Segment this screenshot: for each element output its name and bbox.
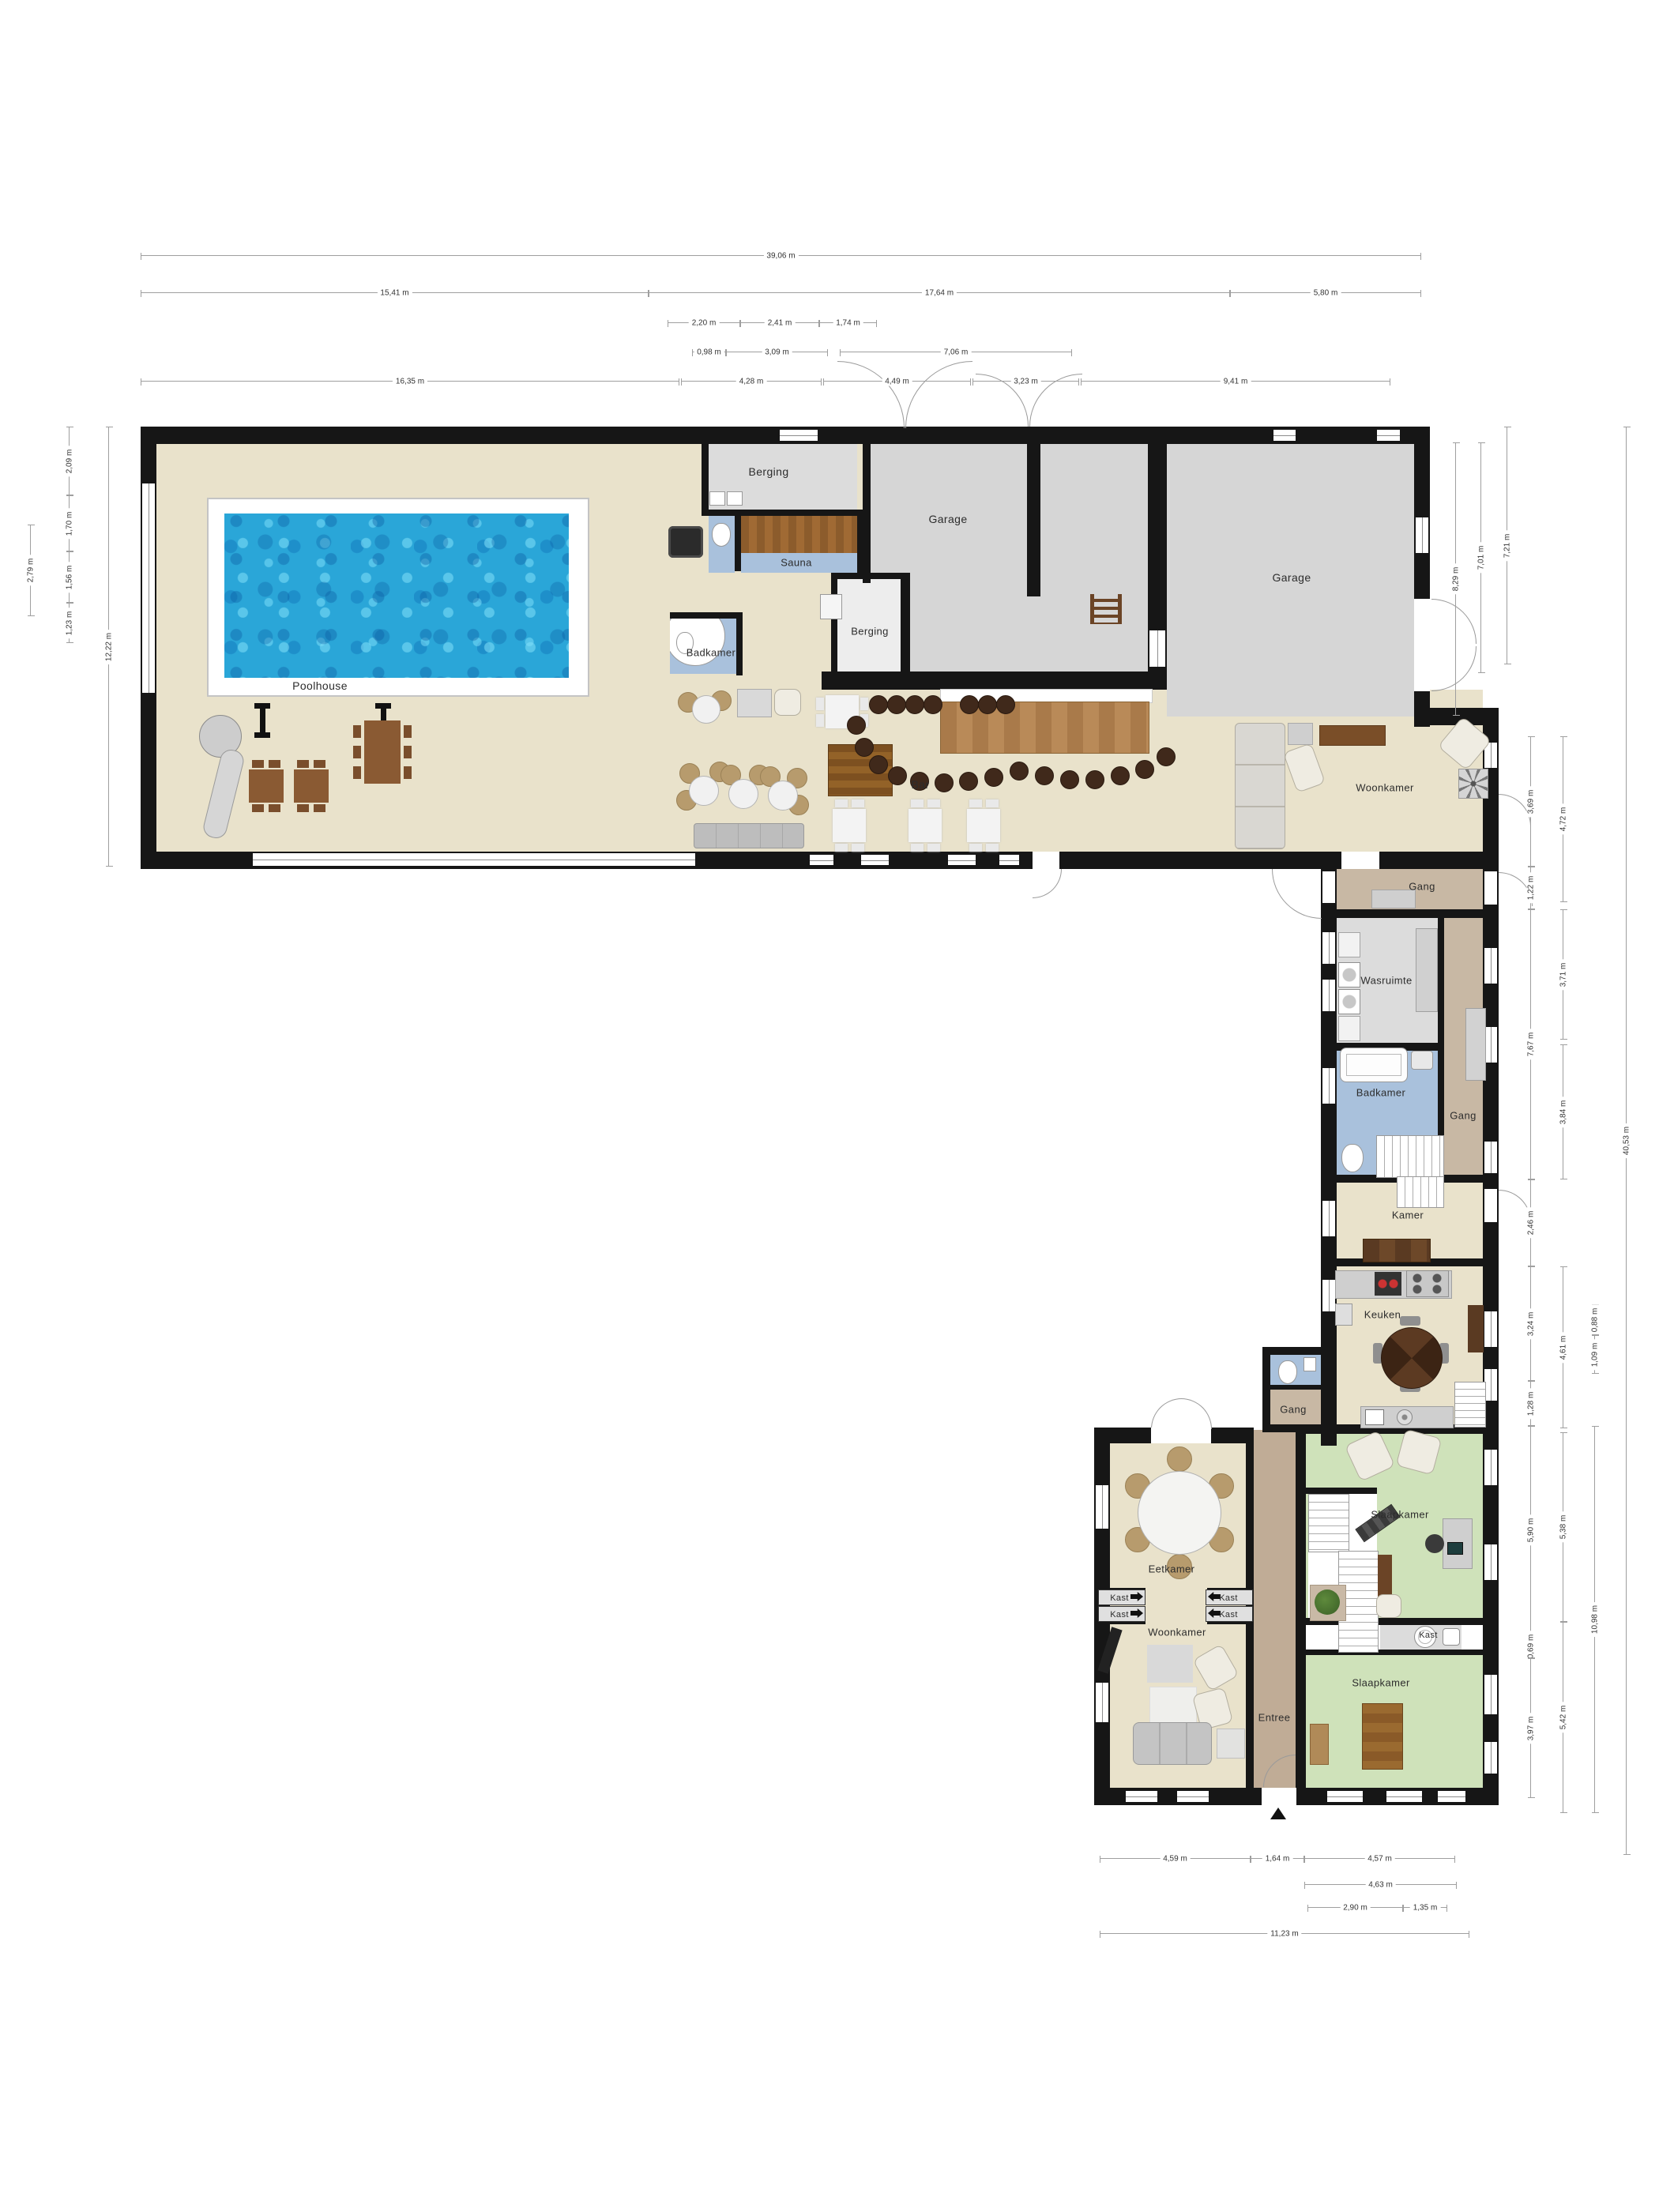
window [1273,430,1296,441]
bar-stool-icon [905,695,924,714]
dimension-label: 4,49 m [882,378,912,386]
door-gap [1151,1428,1211,1443]
arrow-icon [1130,1608,1143,1618]
dimension-label: 1,64 m [1262,1855,1293,1864]
door-arc [1151,1398,1182,1429]
bar-stool-icon [887,695,906,714]
dimension-label: 8,29 m [1452,564,1461,595]
dimension-label: 11,23 m [1267,1930,1301,1939]
cabinet-icon [737,689,772,717]
woonkamer-poolhouse-label: Woonkamer [1356,782,1413,794]
dimension-line: 4,72 m [1563,736,1563,902]
desk-chair-icon [1425,1534,1444,1553]
dimension-line: 3,84 m [1563,1044,1563,1179]
dimension-line: 1,35 m [1403,1907,1447,1908]
floor-plan-canvas: 39,06 m15,41 m17,64 m5,80 m2,20 m2,41 m1… [0,0,1659,2212]
bathtub-icon [1340,1048,1408,1082]
rug [1147,1645,1193,1683]
eetkamer-label: Eetkamer [1149,1563,1195,1575]
swimming-pool [224,513,569,678]
door-gap [1262,1788,1296,1805]
dimension-label: 15,41 m [377,289,412,298]
dimension-line: 3,24 m [1530,1266,1531,1381]
bar-label: Bar [912,778,930,791]
dimension-line: 0,88 m [1594,1304,1595,1335]
wall [901,578,910,673]
dimension-line: 1,09 m [1594,1335,1595,1374]
dimension-line: 2,79 m [30,525,31,616]
staircase [1454,1382,1486,1428]
round-table-icon [768,781,798,811]
door-gap [1484,871,1497,905]
dimension-line: 4,28 m [681,381,822,382]
kast-2-label: Kast [1110,1610,1129,1619]
window [861,855,889,865]
shower-icon [820,594,842,619]
dimension-line: 7,67 m [1530,909,1531,1179]
long-table-icon [353,720,415,784]
keuken-label: Keuken [1364,1309,1401,1321]
window [780,430,818,441]
dimension-line: 3,69 m [1530,736,1531,867]
dimension-label: 3,84 m [1559,1097,1568,1127]
door-arc [1033,869,1062,898]
window [1484,1311,1497,1347]
dimension-label: 7,67 m [1527,1029,1536,1060]
sauna-label: Sauna [781,557,812,569]
wall [736,612,743,675]
bar-stool-icon [984,768,1003,787]
wall [1414,427,1430,599]
dimension-line: 1,28 m [1530,1381,1531,1426]
dimension-label: 1,28 m [1527,1388,1536,1419]
hall-cabinet-icon [1465,1008,1486,1081]
dimension-label: 3,23 m [1010,378,1041,386]
kast-1-label: Kast [1110,1593,1129,1603]
window [1484,1742,1497,1774]
bar-stool-icon [1085,770,1104,789]
sideboard-icon [1363,1239,1431,1262]
toilet-icon [1278,1360,1297,1384]
wall [1296,1428,1306,1788]
dimension-line: 1,22 m [1530,867,1531,909]
garage-ladder-icon [1090,594,1122,624]
hob-icon [1406,1270,1449,1297]
laptop-icon [1447,1542,1463,1555]
fan-icon [1397,1409,1413,1425]
round-table-icon [692,695,720,724]
badkamer-poolhouse-label: Badkamer [687,647,735,659]
dimension-line: 15,41 m [141,292,649,293]
bar-stool-icon [960,695,979,714]
round-table-icon [689,776,719,806]
patio-table-icon [249,760,284,812]
toilet-icon [712,523,731,547]
bench-icon [1310,1724,1329,1765]
slaapkamer-2-label: Slaapkamer [1352,1677,1409,1689]
dimension-line: 16,35 m [141,381,679,382]
dimension-label: 2,90 m [1340,1904,1371,1913]
door-arc [1272,869,1322,919]
bar-stool-icon [1035,766,1054,785]
kast-4-label: Kast [1219,1610,1238,1619]
dimension-label: 4,57 m [1364,1855,1395,1864]
dimension-label: 1,35 m [1410,1904,1441,1913]
washing-machine-icon [1338,962,1360,987]
window [1126,1791,1157,1802]
entree-label: Entree [1258,1712,1291,1724]
dimension-line: 3,71 m [1563,909,1563,1040]
cafe-table-icon [907,799,943,852]
round-table-icon [728,779,758,809]
gang-1-label: Gang [1409,881,1435,893]
treadmill-icon [668,526,703,558]
arrow-icon [1130,1592,1143,1601]
sofa-icon [1235,723,1285,849]
dimension-label: 10,98 m [1591,1602,1600,1637]
door-gap [1341,852,1379,869]
wall [831,573,837,673]
tall-cabinet-icon [1468,1305,1484,1352]
dimension-line: 9,41 m [1081,381,1390,382]
window [1484,1675,1497,1714]
badkamer-2-label: Badkamer [1356,1087,1405,1099]
garage1-floor [871,444,1148,671]
dimension-line: 3,97 m [1530,1658,1531,1798]
window [1484,948,1497,984]
oven-icon [1375,1272,1401,1296]
shelf-icon [1338,932,1360,957]
door-arc [1431,599,1477,644]
dimension-line: 10,98 m [1594,1426,1595,1813]
microwave-icon [1365,1409,1384,1425]
wall [1027,427,1040,596]
patio-table-icon [294,760,329,812]
window [999,855,1019,865]
window [810,855,833,865]
dimension-label: 2,79 m [27,555,36,586]
window [948,855,976,865]
window [1416,517,1428,553]
door-arc [837,361,905,428]
plant-icon [1315,1589,1340,1615]
window [1149,630,1165,667]
bar-stool-icon [869,755,888,774]
berging-2-label: Berging [851,626,889,638]
sideboard-icon [1319,725,1386,746]
window [1377,430,1400,441]
door-arc [1181,1398,1212,1429]
door-arc [1431,646,1477,691]
dimension-line: 7,06 m [840,352,1072,352]
dimension-line: 1,56 m [69,551,70,603]
slaapkamer-1-label: Slaapkamer [1371,1509,1428,1521]
sink-icon [1303,1357,1316,1371]
dimension-line: 1,74 m [819,322,877,323]
dimension-label: 7,06 m [941,348,972,357]
bar-stool-icon [924,695,942,714]
dimension-line: 3,09 m [726,352,828,352]
window [1484,1369,1497,1401]
window [1096,1683,1108,1722]
door-gap [1414,599,1430,691]
window [1096,1485,1108,1529]
dimension-label: 7,01 m [1477,543,1486,574]
dimension-line: 39,06 m [141,255,1421,256]
washing-machine-icon [1338,989,1360,1014]
window [1484,1142,1497,1173]
staircase [1397,1176,1444,1208]
woonkamer-2-label: Woonkamer [1148,1627,1206,1638]
dimension-line: 0,98 m [692,352,726,352]
entrance-arrow-icon [1270,1808,1286,1819]
window [1327,1791,1363,1802]
chair-icon [1167,1446,1192,1472]
entree-floor [1254,1430,1296,1788]
cafe-table-icon [831,799,867,852]
sofa-icon [694,823,804,848]
wall [822,671,1167,690]
kast-3-label: Kast [1219,1593,1238,1603]
dimension-label: 12,22 m [105,629,114,664]
dimension-line: 5,90 m [1530,1426,1531,1634]
dimension-line: 11,23 m [1100,1933,1469,1934]
wall [702,510,863,516]
dimension-line: 17,64 m [649,292,1230,293]
wall [670,612,743,619]
dimension-line: 2,41 m [740,322,819,323]
bar-stool-icon [996,695,1015,714]
bar-stool-icon [1010,762,1029,781]
kast-5-label: Kast [1419,1631,1438,1640]
dimension-line: 12,22 m [108,427,109,867]
dimension-label: 39,06 m [763,252,798,261]
dimension-label: 2,41 m [765,319,796,328]
sofa-icon [1133,1722,1212,1765]
window [1484,1450,1497,1485]
window [1484,1544,1497,1580]
door-gap [1484,1189,1497,1222]
window [1322,1280,1335,1311]
garage-1-label: Garage [928,513,967,525]
dimension-label: 3,09 m [762,348,792,357]
wall [735,513,741,571]
sink-icon [1411,1051,1433,1070]
dimension-label: 4,28 m [736,378,767,386]
door-arc [905,361,972,428]
window [1438,1791,1465,1802]
dimension-label: 9,41 m [1221,378,1251,386]
shelf-icon [1338,1016,1360,1041]
bar-stool-icon [1111,766,1130,785]
bed-table-icon [1362,1703,1403,1770]
window [1322,1201,1335,1236]
dimension-label: 0,98 m [694,348,724,357]
wall [831,573,910,579]
dimension-line: 3,23 m [972,381,1079,382]
dimension-label: 17,64 m [922,289,957,298]
dimension-line: 7,21 m [1507,427,1507,664]
bar-stool-icon [935,773,954,792]
cafe-table-icon [965,799,1002,852]
dimension-label: 5,38 m [1559,1512,1568,1543]
wall [863,427,871,583]
dimension-label: 3,69 m [1527,786,1536,817]
glass-wall [253,853,695,866]
dimension-line: 1,23 m [69,603,70,643]
dimension-line: 40,53 m [1626,427,1627,1855]
dimension-line: 5,38 m [1563,1432,1563,1622]
dimension-label: 2,20 m [689,319,720,328]
dimension-line: 0,69 m [1530,1634,1531,1658]
wall [1321,909,1499,918]
dimension-label: 1,09 m [1591,1339,1600,1370]
dimension-line: 4,59 m [1100,1858,1251,1859]
dimension-label: 1,70 m [66,508,74,539]
rug [1149,1687,1197,1725]
staircase [1308,1494,1349,1552]
stove-fireplace-icon [1458,769,1488,799]
dimension-label: 2,09 m [66,446,74,476]
window [142,483,155,693]
dimension-label: 1,23 m [66,608,74,638]
dimension-label: 1,22 m [1527,873,1536,904]
dimension-label: 4,72 m [1559,804,1568,835]
dimension-label: 4,61 m [1559,1332,1568,1363]
sauna-floor [741,513,857,553]
toilet-icon [1341,1144,1364,1172]
bar-stool-icon [855,738,874,757]
dimension-label: 1,74 m [833,319,863,328]
kitchen-sink-icon [1335,1303,1352,1326]
wall [702,427,709,513]
dimension-line: 4,57 m [1304,1858,1455,1859]
dining-chair-icon [1400,1316,1420,1326]
wasruimte-label: Wasruimte [1360,975,1412,987]
dimension-line: 2,46 m [1530,1179,1531,1266]
dimension-label: 0,88 m [1591,1304,1600,1335]
window [1386,1791,1422,1802]
gang-2-label: Gang [1450,1110,1476,1122]
poolhouse-label: Poolhouse [292,679,348,692]
side-table-icon [1217,1729,1245,1759]
dimension-line: 7,01 m [1480,442,1481,673]
bar-stool-icon [1060,770,1079,789]
kamer-label: Kamer [1392,1209,1424,1221]
berging-1-label: Berging [748,465,788,478]
dimension-label: 2,46 m [1527,1208,1536,1239]
lounge-chair-icon [774,689,801,716]
dimension-line: 1,64 m [1251,1858,1304,1859]
wall [1306,1650,1499,1655]
bar-stool-icon [869,695,888,714]
door-gap [1033,852,1059,869]
doormat-icon [1371,890,1416,908]
chair-icon [1376,1594,1401,1618]
dimension-line: 4,63 m [1304,1884,1457,1885]
gang-3-label: Gang [1280,1404,1306,1416]
dimension-line: 1,70 m [69,495,70,551]
dimension-label: 0,69 m [1527,1631,1536,1661]
dimension-label: 5,42 m [1559,1702,1568,1733]
pool-ladder-icon [254,703,270,738]
dimension-label: 40,53 m [1623,1123,1631,1158]
dimension-line: 2,90 m [1307,1907,1403,1908]
dimension-label: 1,56 m [66,562,74,592]
dimension-line: 8,29 m [1455,442,1456,716]
dimension-label: 16,35 m [393,378,427,386]
window [1484,1027,1497,1063]
garage-2-label: Garage [1272,571,1311,584]
dimension-label: 4,59 m [1160,1855,1191,1864]
side-table-icon [1288,723,1313,745]
dimension-label: 4,63 m [1365,1881,1396,1890]
dimension-line: 2,20 m [668,322,740,323]
dimension-label: 3,71 m [1559,959,1568,990]
dimension-label: 3,97 m [1527,1713,1536,1744]
cabinet-icon [1416,928,1438,1012]
window [1322,1068,1335,1104]
dimension-label: 5,90 m [1527,1514,1536,1545]
wall [1262,1347,1322,1355]
bar-stool-icon [959,772,978,791]
bar-stool-icon [1157,747,1176,766]
bar-stool-icon [1135,760,1154,779]
appliance-icon [1443,1628,1460,1646]
dimension-line: 2,09 m [69,427,70,495]
window [1177,1791,1209,1802]
bar-stool-icon [888,766,907,785]
door-gap [1322,871,1335,903]
dimension-line: 4,49 m [823,381,971,382]
bar-stool-icon [978,695,997,714]
dimension-label: 7,21 m [1503,530,1512,561]
round-dining-table-icon [1138,1471,1221,1555]
dimension-line: 5,80 m [1230,292,1421,293]
window [1322,932,1335,964]
dimension-label: 3,24 m [1527,1308,1536,1339]
sink-icon [709,491,725,506]
bar-stool-icon [847,716,866,735]
dimension-line: 5,42 m [1563,1622,1563,1813]
wall [1302,1488,1377,1494]
sink-icon [727,491,743,506]
staircase [1376,1135,1444,1178]
dimension-label: 5,80 m [1311,289,1341,298]
window [1322,980,1335,1011]
dimension-line: 4,61 m [1563,1266,1563,1428]
wall [1262,1385,1322,1390]
